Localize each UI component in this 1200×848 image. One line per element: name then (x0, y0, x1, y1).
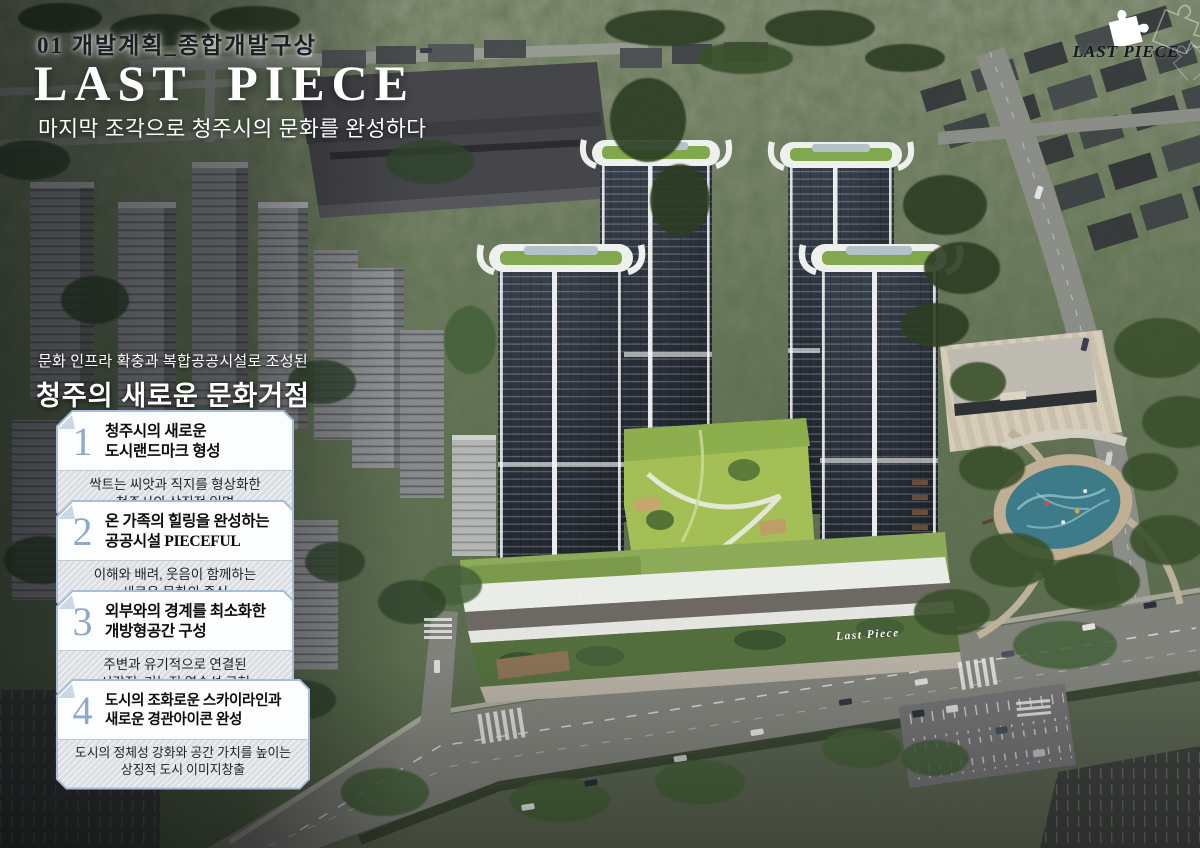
last-piece-logo: LAST PIECE (1052, 2, 1200, 62)
section-intro: 문화 인프라 확충과 복합공공시설로 조성된 (8, 350, 338, 371)
point-title: 청주시의 새로운도시랜드마크 형성 (105, 422, 220, 462)
section-heading-block: 문화 인프라 확충과 복합공공시설로 조성된 청주의 새로운 문화거점 (8, 350, 338, 413)
point-card-4: 4 도시의 조화로운 스카이라인과새로운 경관아이콘 완성 도시의 정체성 강화… (56, 679, 310, 790)
point-description: 도시의 정체성 강화와 공간 가치를 높이는상징적 도시 이미지창출 (58, 739, 308, 788)
slide-title: LAST PIECE (34, 54, 415, 112)
point-title: 도시의 조화로운 스카이라인과새로운 경관아이콘 완성 (105, 692, 281, 729)
section-heading: 청주의 새로운 문화거점 (8, 374, 338, 413)
logo-label: LAST PIECE (1052, 42, 1200, 62)
puzzle-piece-icon (1100, 2, 1152, 46)
slide-subtitle: 마지막 조각으로 청주시의 문화를 완성하다 (38, 112, 427, 143)
point-title: 외부와의 경계를 최소화한개방형공간 구성 (105, 602, 266, 642)
point-title: 온 가족의 힐링을 완성하는공공시설 PIECEFUL (105, 512, 269, 552)
presentation-slide: 01 개발계획_종합개발구상 LAST PIECE 마지막 조각으로 청주시의 … (0, 0, 1200, 848)
